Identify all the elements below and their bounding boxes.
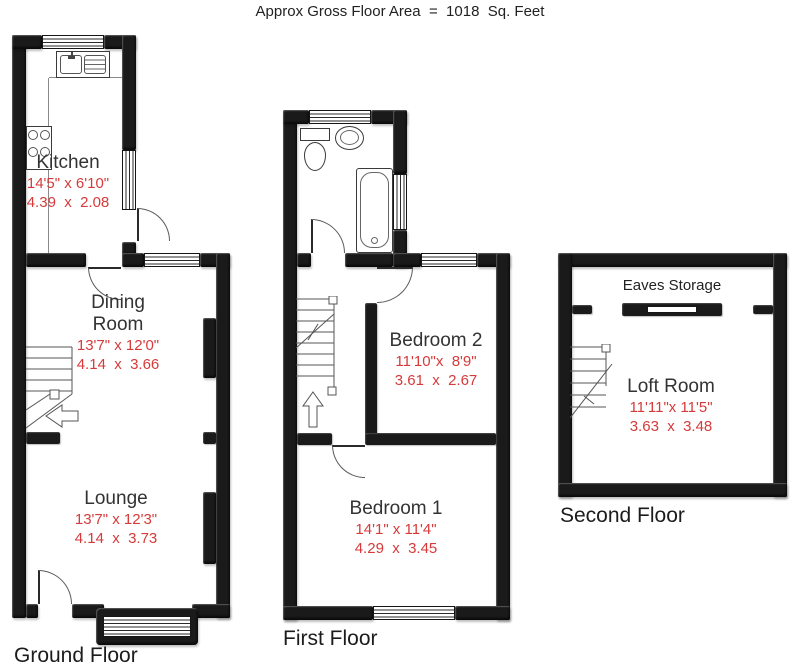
- sink-drainer: [84, 55, 106, 74]
- room-dimensions-metric: 4.14 x 3.73: [46, 529, 186, 548]
- basin-inner: [340, 130, 359, 145]
- room-dimensions-metric: 4.39 x 2.08: [0, 193, 136, 212]
- area-name: Eaves Storage: [602, 277, 742, 295]
- bathtub-drain: [371, 237, 378, 244]
- hob-burner: [28, 130, 38, 140]
- window: [309, 110, 371, 124]
- room-label-dining: Dining Room 13'7" x 12'0" 4.14 x 3.66: [48, 292, 188, 374]
- staircase: [296, 296, 342, 428]
- room-name: Kitchen: [0, 152, 136, 174]
- tap-icon: [71, 52, 73, 57]
- room-name: Loft Room: [601, 376, 741, 398]
- window: [144, 253, 200, 267]
- stairs-direction-arrow: [46, 405, 78, 427]
- hob-burner: [40, 130, 50, 140]
- room-label-kitchen: Kitchen 14'5" x 6'10" 4.39 x 2.08: [0, 152, 136, 212]
- room-dimensions-imperial: 14'1" x 11'4": [326, 520, 466, 539]
- room-dimensions-imperial: 11'11"x 11'5": [601, 398, 741, 417]
- wall: [558, 483, 787, 497]
- room-label-loft: Loft Room 11'11"x 11'5" 3.63 x 3.48: [601, 376, 741, 436]
- internal-window: [647, 306, 697, 313]
- wall: [753, 305, 773, 314]
- gross-floor-area-title: Approx Gross Floor Area = 1018 Sq. Feet: [0, 3, 800, 20]
- eaves-storage-label: Eaves Storage: [602, 277, 742, 295]
- room-dimensions-metric: 4.29 x 3.45: [326, 539, 466, 558]
- window: [373, 606, 455, 620]
- wall: [558, 253, 787, 267]
- room-name: Bedroom 1: [326, 498, 466, 520]
- room-dimensions-imperial: 11'10"x 8'9": [366, 352, 506, 371]
- first-floor-label: First Floor: [283, 627, 378, 651]
- ground-floor-label: Ground Floor: [14, 644, 138, 668]
- room-dimensions-imperial: 14'5" x 6'10": [0, 174, 136, 193]
- wall: [773, 253, 787, 497]
- room-name: Bedroom 2: [366, 330, 506, 352]
- room-dimensions-metric: 4.14 x 3.66: [48, 355, 188, 374]
- floorplan-page: Approx Gross Floor Area = 1018 Sq. Feet: [0, 0, 800, 671]
- room-dimensions-imperial: 13'7" x 12'0": [48, 336, 188, 355]
- room-dimensions-metric: 3.61 x 2.67: [366, 371, 506, 390]
- toilet-cistern: [300, 128, 330, 141]
- room-label-lounge: Lounge 13'7" x 12'3" 4.14 x 3.73: [46, 488, 186, 548]
- second-floor-label: Second Floor: [560, 504, 685, 528]
- window: [393, 174, 407, 230]
- bay-window: [103, 616, 191, 637]
- room-label-bedroom2: Bedroom 2 11'10"x 8'9" 3.61 x 2.67: [366, 330, 506, 390]
- window: [421, 253, 477, 267]
- window: [42, 35, 104, 49]
- room-name: Lounge: [46, 488, 186, 510]
- room-label-bedroom1: Bedroom 1 14'1" x 11'4" 4.29 x 3.45: [326, 498, 466, 558]
- stairs-direction-arrow: [303, 392, 323, 427]
- room-dimensions-imperial: 13'7" x 12'3": [46, 510, 186, 529]
- wall: [572, 305, 592, 314]
- room-dimensions-metric: 3.63 x 3.48: [601, 417, 741, 436]
- room-name: Dining Room: [76, 292, 160, 336]
